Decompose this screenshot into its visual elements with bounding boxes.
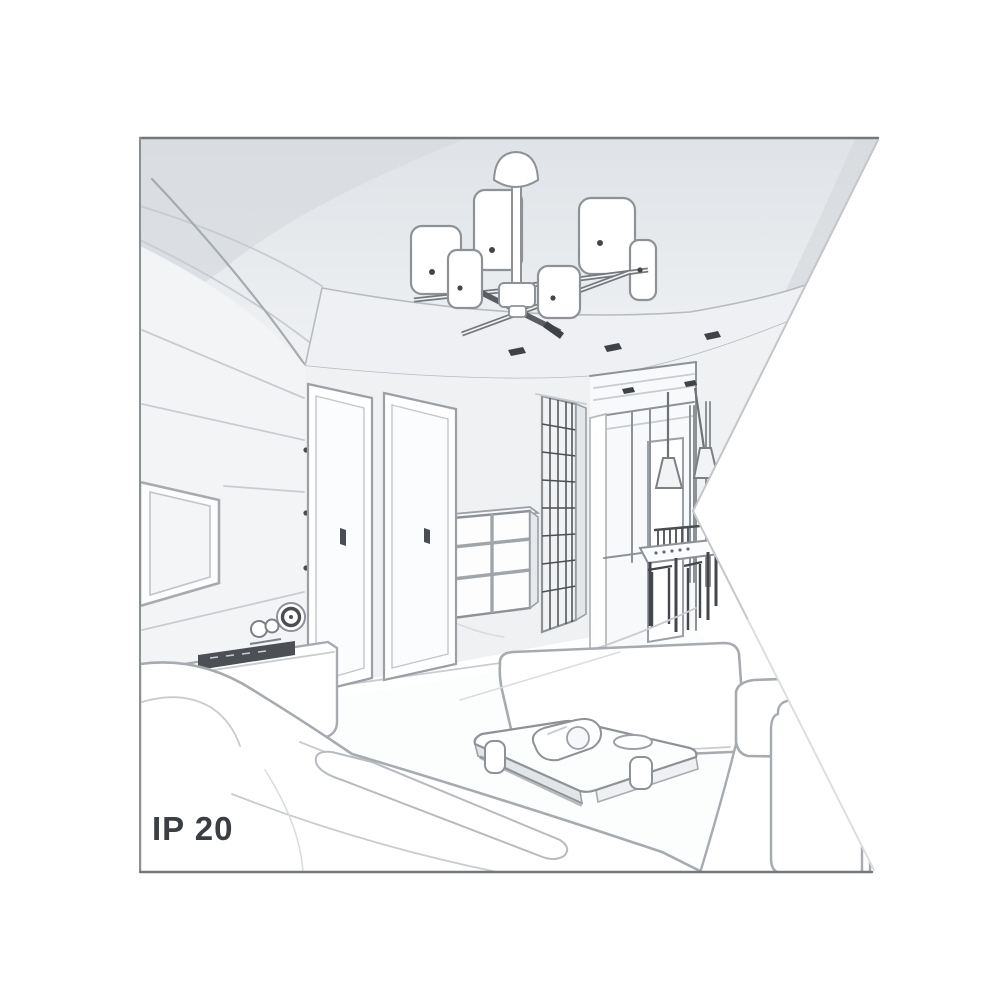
plate [614, 735, 652, 749]
lamp-shade [538, 266, 580, 318]
door-panel [392, 405, 448, 668]
chandelier-hub [499, 283, 535, 307]
lamp-shade [579, 198, 635, 274]
door-handle [340, 528, 346, 546]
wardrobe-side [576, 404, 586, 620]
wall-clock [277, 603, 305, 631]
chandelier-rod [512, 182, 521, 286]
glass [630, 757, 652, 789]
ip-rating-label: IP 20 [152, 810, 233, 847]
interior-line-drawing: IP 20 [0, 0, 1000, 1000]
corridor-door [590, 414, 606, 658]
chandelier-hub-cap [509, 306, 526, 317]
scene: IP 20 [0, 0, 1000, 1000]
door-right [384, 393, 456, 680]
cup [485, 741, 505, 773]
lamp-shade [448, 250, 482, 308]
bowl-fruit [567, 727, 589, 749]
door-handle [424, 528, 430, 544]
armchair-arm-cushion [771, 698, 862, 873]
wardrobe-grid-door [542, 396, 576, 632]
tv-screen [150, 492, 210, 595]
grid-wardrobe [536, 394, 586, 632]
chest-side [530, 511, 538, 608]
tv [140, 482, 219, 606]
ceiling-canopy [494, 152, 538, 187]
illustration-canvas: IP 20 [0, 0, 1000, 1000]
